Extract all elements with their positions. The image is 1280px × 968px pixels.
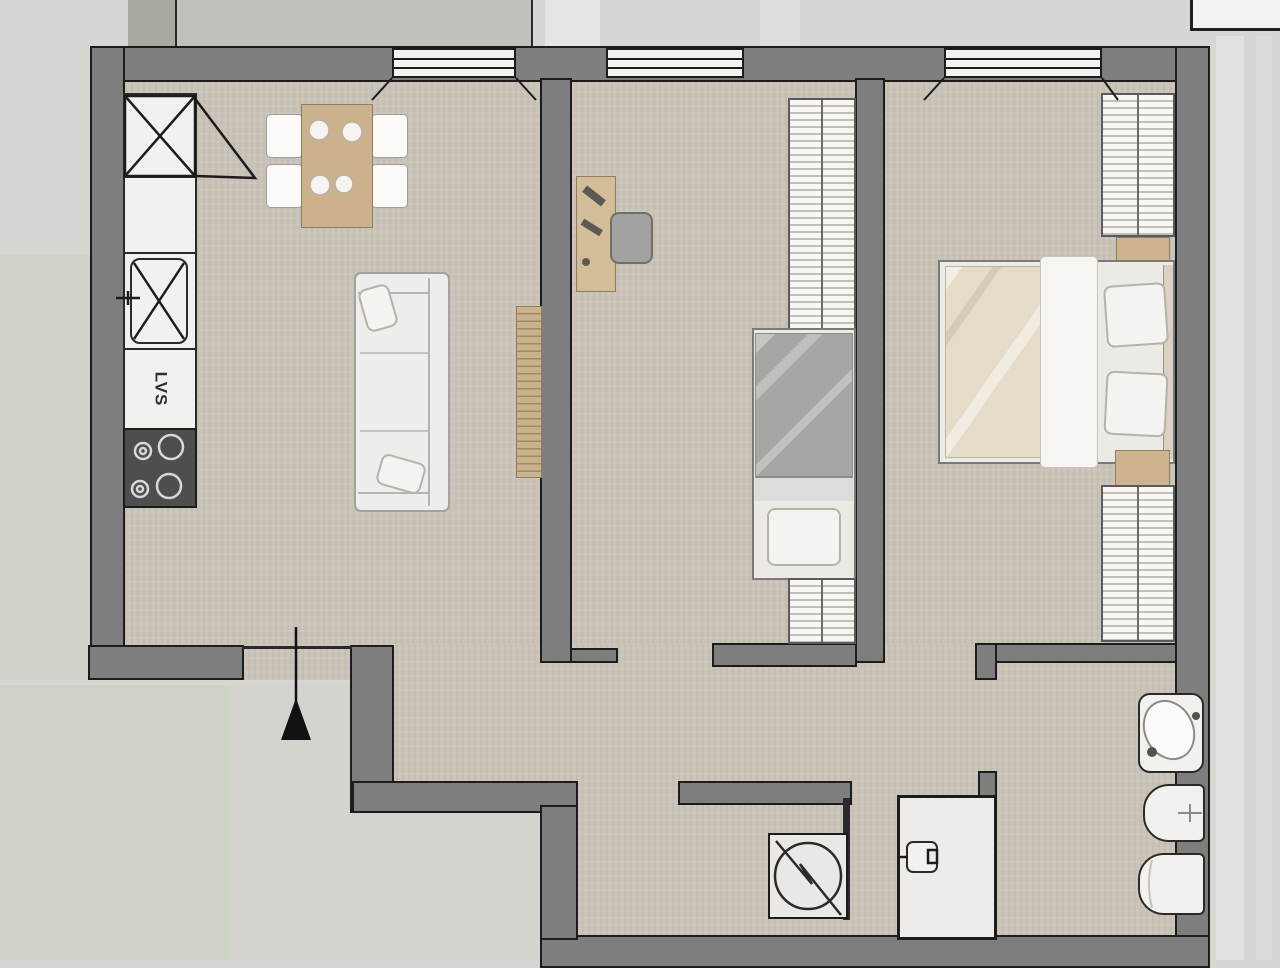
sofa-armrest-bottom [358,492,428,510]
wardrobe-middle-lower [788,578,856,644]
window-bedroom-middle [606,48,744,78]
wall-right-bedroom-bottom-jamb [975,643,997,680]
wall-divider-living-middle-stub [570,648,618,663]
floorplan-page: { "plan": { "type": "apartment-floor-pla… [0,0,1280,960]
room-hallway [392,663,977,783]
bed-double-duvet [945,266,1045,458]
bidet [1143,784,1205,842]
shower-mixer [906,841,938,873]
radiator-living [516,306,542,478]
washbasin-counter [1138,693,1204,773]
bed-double-folded-blanket [1040,256,1098,468]
wardrobe-divider-line [821,100,823,328]
dining-chair-4 [371,164,408,208]
entrance-threshold-line [242,646,352,649]
wall-divider-living-middle [540,78,572,663]
background-greenery-left [0,255,90,680]
dining-chair-1 [266,114,303,158]
wardrobe-divider-line [821,580,823,642]
background-streak-1 [545,0,600,46]
dining-chair-2 [266,164,303,208]
bed-double-pillow-bottom [1103,370,1168,437]
background-streak-right [1216,36,1244,960]
bed-middle-duvet [755,333,853,477]
wall-left [90,46,125,680]
kitchen-counter-divider-2 [125,252,195,254]
background-streak-2 [760,0,800,46]
window-bedroom-right [944,48,1102,78]
wall-right-bedroom-bottom [975,643,1177,663]
wall-living-bottom-left [88,645,244,680]
dining-table [301,104,373,228]
background-upper-unit [175,0,533,46]
window-living-room [392,48,516,78]
bed-middle-sheet [755,477,853,501]
wardrobe-middle-upper [788,98,856,330]
wall-divider-middle-right [855,78,885,663]
wardrobe-divider-line [1137,95,1139,235]
washing-machine [768,833,848,919]
background-streak-right-2 [1256,36,1272,960]
sofa-cushion-seam [360,430,428,432]
toilet [1138,853,1205,915]
wall-bottom [540,935,1210,968]
background-greenery-bottom-left [0,685,230,960]
desk-chair [610,212,653,264]
wall-hall-left-lower [540,805,578,940]
background-cropped-box [1190,0,1280,31]
dishwasher-label: LVS [150,372,170,407]
nightstand-bottom [1115,450,1170,488]
bed-middle-pillow [767,508,841,566]
wardrobe-right-lower [1101,485,1175,642]
kitchen-sink-unit [130,258,188,344]
wall-lower-corridor-top [678,781,852,805]
bed-double-pillow-top [1103,282,1169,348]
wardrobe-right-upper [1101,93,1175,237]
background-dark-strip [128,0,175,46]
stove [123,428,197,508]
dishwasher-unit: LVS [123,348,197,430]
kitchen-counter-divider-1 [125,176,195,178]
wall-middle-bottom [712,643,857,667]
sofa-cushion-seam [360,352,428,354]
wardrobe-divider-line [1137,487,1139,640]
floor-entrance-gap [242,645,352,680]
sofa-backrest [428,278,448,506]
dining-chair-3 [371,114,408,158]
bed-middle [752,328,856,580]
